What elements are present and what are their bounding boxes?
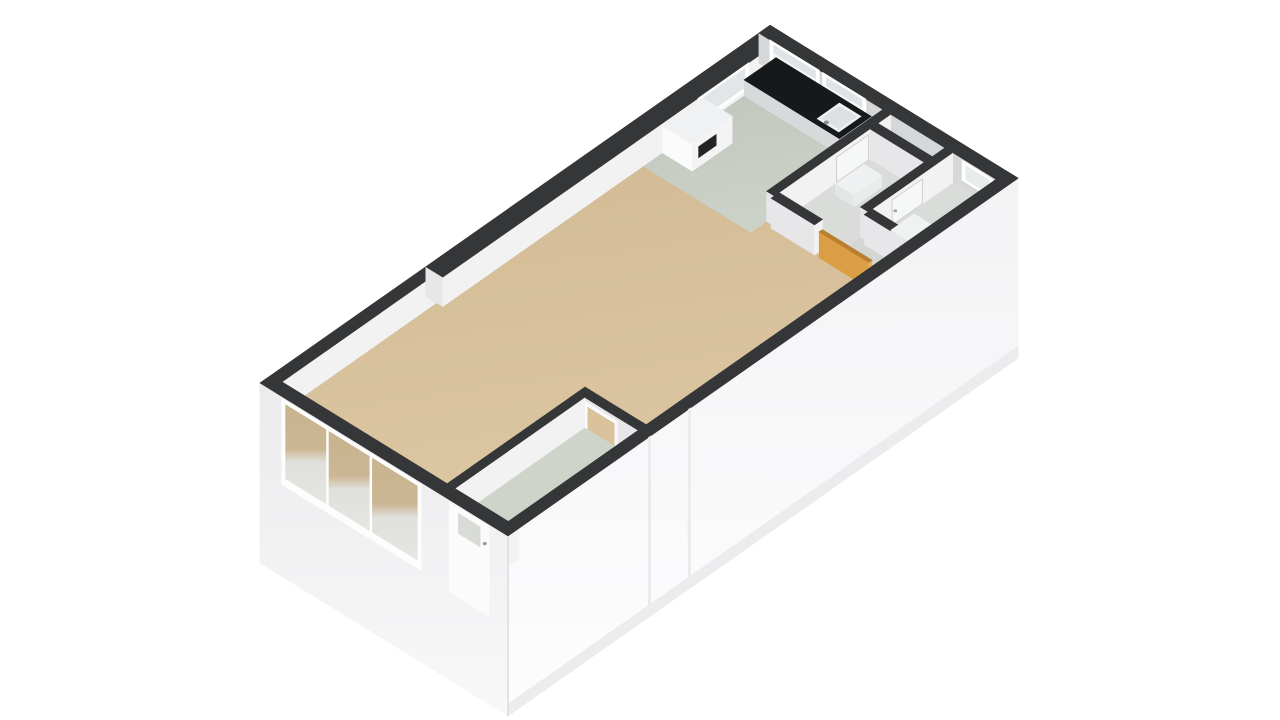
bedroom-exterior-door-handle <box>483 542 487 545</box>
apartment-model <box>260 25 1018 716</box>
toilet-door-handle <box>893 209 897 212</box>
facade-seam-1 <box>648 436 650 618</box>
floorplan-3d-scene <box>0 0 1280 720</box>
facade-seam-2 <box>688 408 690 590</box>
kitchen-faucet <box>824 120 829 124</box>
floorplan-3d-view <box>0 0 1280 720</box>
